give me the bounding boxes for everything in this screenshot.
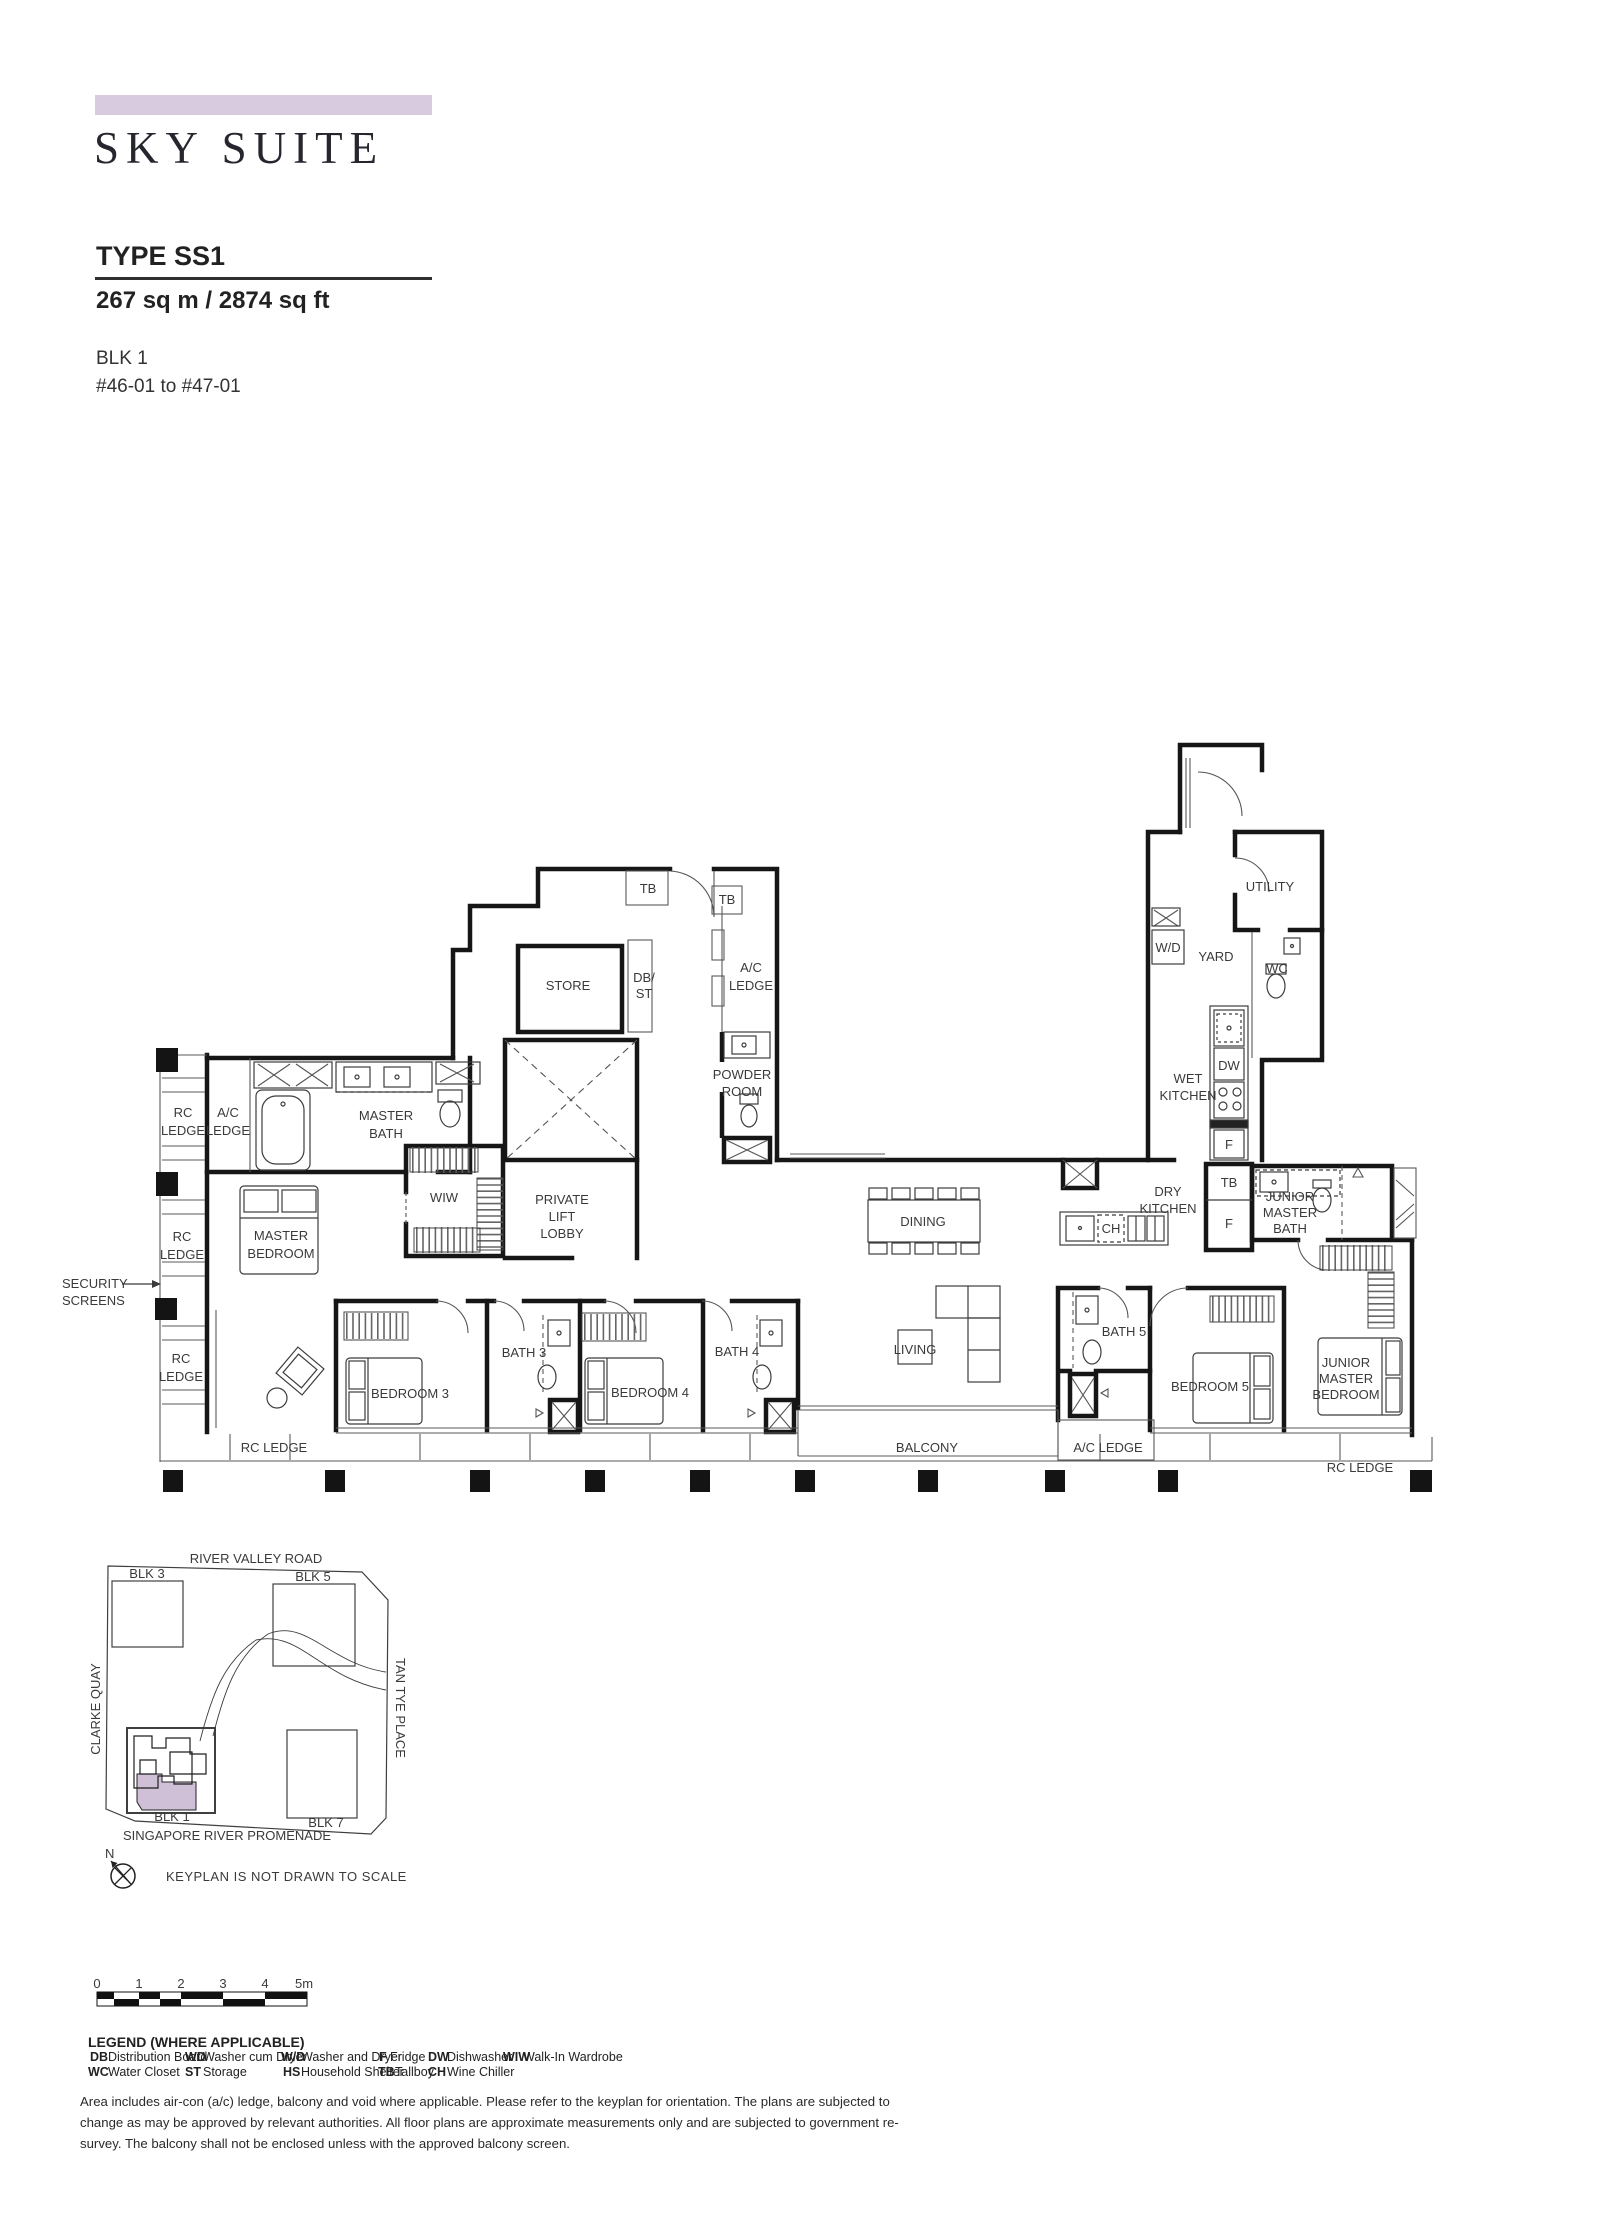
label-clarke-quay: CLARKE QUAY <box>88 1663 103 1755</box>
label-jm-bedroom: JUNIOR <box>1322 1355 1370 1370</box>
security-screens-pointer <box>122 1280 161 1288</box>
label-wc: WC <box>1266 961 1288 976</box>
legend-term: Walk-In Wardrobe <box>523 2050 623 2064</box>
legend-heading: LEGEND (WHERE APPLICABLE) <box>88 2034 304 2050</box>
svg-text:BATH: BATH <box>1273 1221 1307 1236</box>
label-master-bath: MASTER <box>359 1108 413 1123</box>
legend-abbr: DB <box>90 2050 108 2064</box>
svg-text:LEDGE: LEDGE <box>161 1123 205 1138</box>
svg-text:BEDROOM: BEDROOM <box>247 1246 314 1261</box>
keyplan: RIVER VALLEY ROAD BLK 3 BLK 5 CLARKE QUA… <box>88 1551 408 1888</box>
label-blk3: BLK 3 <box>129 1566 164 1581</box>
svg-text:5m: 5m <box>295 1976 313 1991</box>
svg-text:1: 1 <box>135 1976 142 1991</box>
room-labels: RC LEDGE A/C LEDGE MASTER BATH STORE DB/… <box>62 879 1394 1475</box>
label-master-bedroom: MASTER <box>254 1228 308 1243</box>
label-ac-ledge-left: A/C <box>217 1105 239 1120</box>
label-bath4: BATH 4 <box>715 1344 760 1359</box>
svg-text:BEDROOM: BEDROOM <box>1312 1387 1379 1402</box>
disclaimer: Area includes air-con (a/c) ledge, balco… <box>80 2091 913 2154</box>
floor-plan: RC LEDGE A/C LEDGE MASTER BATH STORE DB/… <box>0 0 1600 2218</box>
label-ac-ledge-mid: A/C <box>740 960 762 975</box>
label-tb-right: TB <box>1221 1175 1238 1190</box>
legend-term: Storage <box>203 2065 247 2079</box>
svg-text:LIFT: LIFT <box>549 1209 576 1224</box>
legend-term: Fridge <box>390 2050 425 2064</box>
legend-abbr: F <box>379 2050 387 2064</box>
svg-text:LEDGE: LEDGE <box>729 978 773 993</box>
label-ch: CH <box>1102 1221 1121 1236</box>
label-bedroom4: BEDROOM 4 <box>611 1385 689 1400</box>
svg-text:3: 3 <box>219 1976 226 1991</box>
label-utility: UTILITY <box>1246 879 1295 894</box>
keyplan-highlight-unit <box>137 1774 196 1810</box>
legend-abbr: HS <box>283 2065 300 2079</box>
svg-text:LEDGE: LEDGE <box>206 1123 250 1138</box>
label-balcony: BALCONY <box>896 1440 958 1455</box>
label-dining: DINING <box>900 1214 946 1229</box>
label-ac-ledge-bottom: A/C LEDGE <box>1073 1440 1143 1455</box>
label-store: STORE <box>546 978 591 993</box>
legend-abbr: WC <box>88 2065 109 2079</box>
label-bath3: BATH 3 <box>502 1345 547 1360</box>
label-powder-room: POWDER <box>713 1067 772 1082</box>
svg-text:ROOM: ROOM <box>722 1084 762 1099</box>
svg-text:KITCHEN: KITCHEN <box>1139 1201 1196 1216</box>
label-tan-tye-place: TAN TYE PLACE <box>393 1658 408 1758</box>
label-bath5: BATH 5 <box>1102 1324 1147 1339</box>
shaft-crosses <box>258 910 1363 1430</box>
label-promenade: SINGAPORE RIVER PROMENADE <box>123 1828 331 1843</box>
label-rc-ledge-mid: RC <box>173 1229 192 1244</box>
label-living: LIVING <box>894 1342 937 1357</box>
svg-text:MASTER: MASTER <box>1319 1371 1373 1386</box>
svg-text:MASTER: MASTER <box>1263 1205 1317 1220</box>
svg-text:ST: ST <box>636 986 653 1001</box>
label-db: DB/ <box>633 970 655 985</box>
label-rc-ledge-right: RC LEDGE <box>1327 1460 1394 1475</box>
label-river-valley-road: RIVER VALLEY ROAD <box>190 1551 322 1566</box>
walls <box>207 745 1412 1435</box>
svg-text:4: 4 <box>261 1976 268 1991</box>
brochure-page: SKY SUITE TYPE SS1 267 sq m / 2874 sq ft… <box>0 0 1600 2218</box>
svg-text:KITCHEN: KITCHEN <box>1159 1088 1216 1103</box>
label-tb-entry: TB <box>719 892 736 907</box>
svg-text:SCREENS: SCREENS <box>62 1293 125 1308</box>
label-dw: DW <box>1218 1058 1240 1073</box>
svg-text:0: 0 <box>93 1976 100 1991</box>
label-yard: YARD <box>1198 949 1233 964</box>
legend-abbr: CH <box>428 2065 446 2079</box>
label-bedroom3: BEDROOM 3 <box>371 1386 449 1401</box>
label-blk5: BLK 5 <box>295 1569 330 1584</box>
label-wet-kitchen: WET <box>1174 1071 1203 1086</box>
legend-term: Water Closet <box>108 2065 180 2079</box>
label-tb-top: TB <box>640 881 657 896</box>
keyplan-note: KEYPLAN IS NOT DRAWN TO SCALE <box>166 1869 407 1884</box>
label-wd: W/D <box>1155 940 1180 955</box>
label-rc-ledge-top: RC <box>174 1105 193 1120</box>
label-wiw: WIW <box>430 1190 459 1205</box>
label-rc-ledge-low: RC <box>172 1351 191 1366</box>
svg-text:LEDGE: LEDGE <box>160 1247 204 1262</box>
legend-abbr: TB <box>378 2065 395 2079</box>
svg-text:LOBBY: LOBBY <box>540 1226 584 1241</box>
compass-north: N <box>105 1846 114 1861</box>
label-security-screens: SECURITY <box>62 1276 128 1291</box>
label-dry-kitchen: DRY <box>1154 1184 1182 1199</box>
svg-text:2: 2 <box>177 1976 184 1991</box>
label-rc-ledge-bottom: RC LEDGE <box>241 1440 308 1455</box>
legend-abbr: ST <box>185 2065 201 2079</box>
svg-text:BATH: BATH <box>369 1126 403 1141</box>
label-f-upper: F <box>1225 1137 1233 1152</box>
label-jm-bath: JUNIOR <box>1266 1189 1314 1204</box>
north-compass-icon: N <box>105 1846 135 1888</box>
legend-term: Wine Chiller <box>447 2065 514 2079</box>
svg-text:LEDGE: LEDGE <box>159 1369 203 1384</box>
legend: LEGEND (WHERE APPLICABLE) DB Distributio… <box>88 2034 858 2094</box>
label-lift-lobby: PRIVATE <box>535 1192 589 1207</box>
legend-abbr: DW <box>428 2050 449 2064</box>
scale-bar: 0 1 2 3 4 5m <box>93 1976 313 2006</box>
door-arcs <box>406 772 1328 1333</box>
label-bedroom5: BEDROOM 5 <box>1171 1379 1249 1394</box>
label-blk1: BLK 1 <box>154 1809 189 1824</box>
label-f-lower: F <box>1225 1216 1233 1231</box>
